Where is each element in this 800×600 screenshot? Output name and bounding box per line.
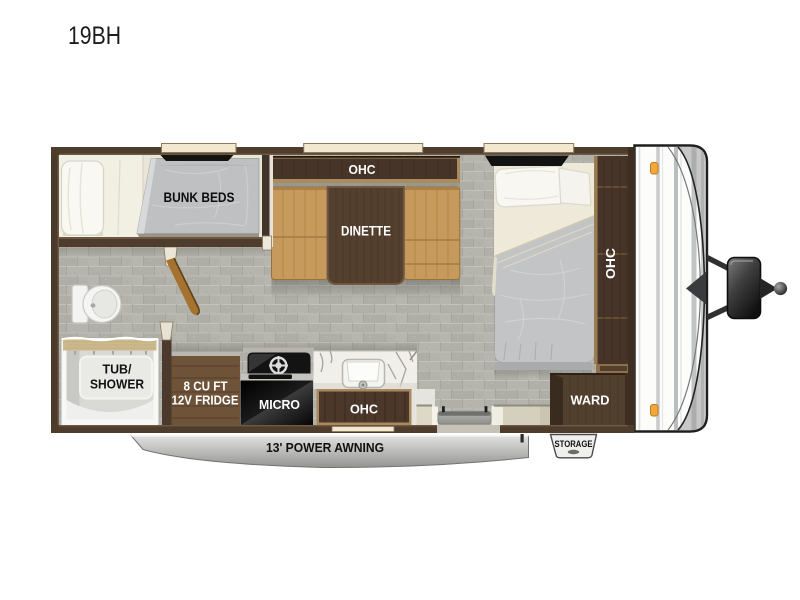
svg-text:12V FRIDGE: 12V FRIDGE [172,394,239,408]
svg-text:WARD: WARD [571,393,610,408]
svg-text:BUNK BEDS: BUNK BEDS [164,189,235,205]
svg-text:DINETTE: DINETTE [341,224,391,239]
svg-text:OHC: OHC [603,247,618,279]
svg-text:OHC: OHC [349,162,377,177]
svg-text:TUB/: TUB/ [103,362,132,377]
svg-text:SHOWER: SHOWER [90,377,145,392]
svg-text:MICRO: MICRO [259,397,300,412]
svg-text:OHC: OHC [350,402,379,417]
svg-text:19BH: 19BH [68,22,121,50]
svg-text:STORAGE: STORAGE [555,439,593,449]
svg-text:8 CU FT: 8 CU FT [184,380,228,394]
svg-text:13' POWER AWNING: 13' POWER AWNING [266,440,384,455]
